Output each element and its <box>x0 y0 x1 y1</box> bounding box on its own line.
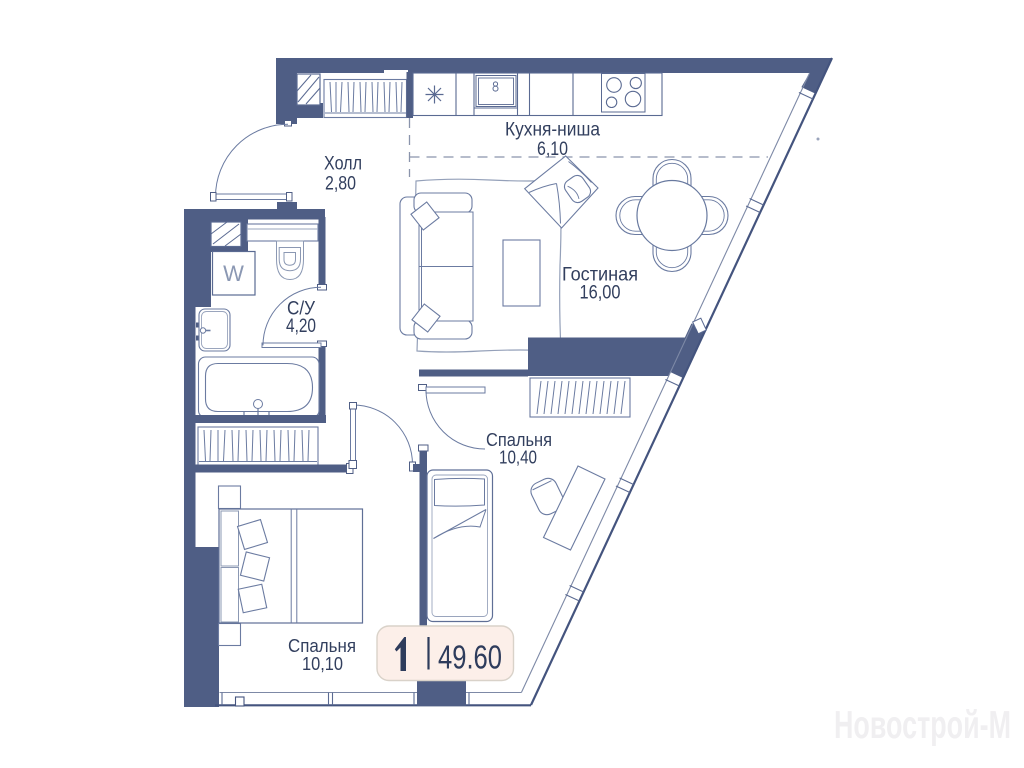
svg-text:Холл: Холл <box>324 154 362 175</box>
svg-text:Кухня-ниша: Кухня-ниша <box>505 120 600 141</box>
svg-text:10,40: 10,40 <box>499 448 537 468</box>
svg-text:6,10: 6,10 <box>537 139 568 160</box>
svg-text:W: W <box>223 261 244 286</box>
svg-text:2,80: 2,80 <box>325 174 356 195</box>
svg-text:4,20: 4,20 <box>286 316 316 337</box>
svg-text:Новострой-М: Новострой-М <box>834 704 1011 747</box>
svg-text:Спальня: Спальня <box>288 636 356 656</box>
svg-text:49.60: 49.60 <box>438 639 502 676</box>
svg-text:16,00: 16,00 <box>580 283 621 304</box>
svg-text:10,10: 10,10 <box>302 654 343 674</box>
